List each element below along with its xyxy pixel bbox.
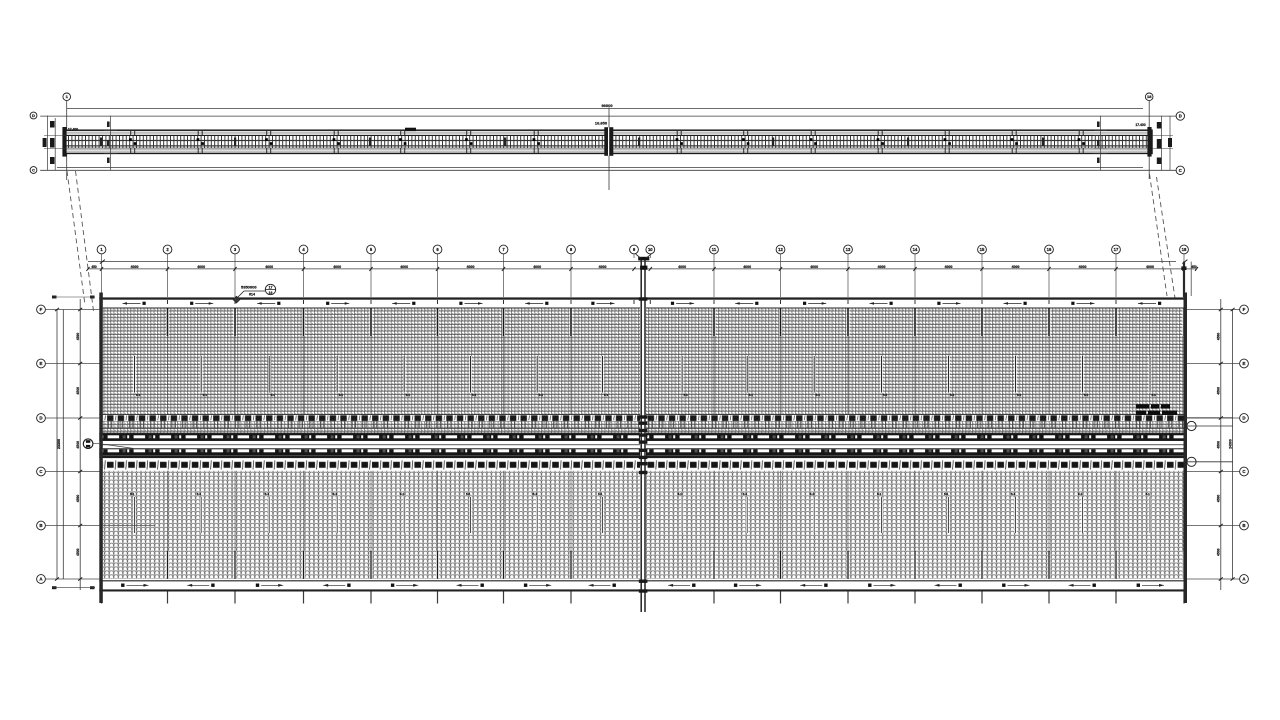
svg-text:5-1: 5-1 xyxy=(684,393,689,397)
svg-text:15: 15 xyxy=(980,247,985,252)
svg-text:4000: 4000 xyxy=(1079,265,1087,269)
svg-text:5-1: 5-1 xyxy=(810,492,815,496)
svg-text:D: D xyxy=(32,114,35,118)
svg-text:24300: 24300 xyxy=(1228,439,1232,449)
svg-text:5350000: 5350000 xyxy=(241,285,257,290)
svg-text:16: 16 xyxy=(1047,247,1052,252)
svg-text:4500: 4500 xyxy=(1217,495,1221,503)
svg-text:14: 14 xyxy=(913,247,918,252)
svg-text:B: B xyxy=(39,523,42,528)
svg-text:4000: 4000 xyxy=(945,265,953,269)
svg-text:5-1: 5-1 xyxy=(271,393,276,397)
svg-text:96000: 96000 xyxy=(601,103,613,108)
svg-text:17: 17 xyxy=(1114,247,1119,252)
svg-text:4000: 4000 xyxy=(810,265,818,269)
svg-text:5-1: 5-1 xyxy=(1146,492,1151,496)
svg-text:4000: 4000 xyxy=(1012,265,1020,269)
svg-text:5-1: 5-1 xyxy=(533,492,538,496)
svg-text:12: 12 xyxy=(778,247,783,252)
svg-text:5-1: 5-1 xyxy=(1078,492,1083,496)
svg-text:17: 17 xyxy=(269,286,273,290)
svg-text:4000: 4000 xyxy=(878,265,886,269)
svg-text:13: 13 xyxy=(846,247,851,252)
svg-text:5-1: 5-1 xyxy=(743,492,748,496)
svg-text:5-1: 5-1 xyxy=(950,393,955,397)
svg-text:5-1: 5-1 xyxy=(1084,393,1089,397)
svg-text:5-1: 5-1 xyxy=(1017,393,1022,397)
svg-text:10: 10 xyxy=(648,247,653,252)
svg-text:E: E xyxy=(40,361,43,366)
svg-text:5-1: 5-1 xyxy=(1011,492,1016,496)
svg-text:#14: #14 xyxy=(249,293,255,297)
svg-text:4500: 4500 xyxy=(76,548,80,556)
svg-text:5-1: 5-1 xyxy=(816,393,821,397)
svg-text:5-1: 5-1 xyxy=(130,492,135,496)
svg-text:11: 11 xyxy=(712,247,717,252)
svg-text:D: D xyxy=(1179,114,1182,119)
svg-text:4000: 4000 xyxy=(467,265,475,269)
svg-text:5-1: 5-1 xyxy=(197,492,202,496)
svg-text:5-1: 5-1 xyxy=(678,492,683,496)
svg-text:5-1: 5-1 xyxy=(604,393,609,397)
svg-text:4500: 4500 xyxy=(76,495,80,503)
svg-text:B: B xyxy=(1242,523,1245,528)
svg-text:450: 450 xyxy=(1191,265,1197,269)
svg-text:C: C xyxy=(32,168,35,172)
svg-text:C: C xyxy=(1179,168,1182,173)
svg-text:17.400: 17.400 xyxy=(1135,123,1145,127)
svg-text:D: D xyxy=(39,416,42,421)
svg-text:4000: 4000 xyxy=(599,265,607,269)
svg-text:4000: 4000 xyxy=(333,265,341,269)
svg-text:5-1: 5-1 xyxy=(944,492,949,496)
svg-text:4000: 4000 xyxy=(743,265,751,269)
svg-text:5-1: 5-1 xyxy=(265,492,270,496)
svg-text:4000: 4000 xyxy=(197,265,205,269)
svg-text:5-1: 5-1 xyxy=(598,492,603,496)
svg-text:F: F xyxy=(40,307,43,312)
svg-text:4000: 4000 xyxy=(265,265,273,269)
svg-text:18: 18 xyxy=(1147,94,1152,99)
svg-text:17.400: 17.400 xyxy=(68,128,78,132)
svg-text:4500: 4500 xyxy=(1217,387,1221,395)
svg-text:18: 18 xyxy=(1182,247,1187,252)
svg-text:4500: 4500 xyxy=(1217,548,1221,556)
svg-text:5-1: 5-1 xyxy=(472,393,477,397)
svg-text:5-1: 5-1 xyxy=(466,492,471,496)
svg-text:F: F xyxy=(1243,307,1246,312)
svg-text:5-1: 5-1 xyxy=(400,492,405,496)
svg-text:16.650: 16.650 xyxy=(595,121,608,126)
svg-text:5-1: 5-1 xyxy=(203,393,208,397)
svg-text:E: E xyxy=(1243,361,1246,366)
svg-text:5-1: 5-1 xyxy=(333,492,338,496)
svg-text:4000: 4000 xyxy=(1146,265,1154,269)
svg-text:4500: 4500 xyxy=(76,387,80,395)
svg-text:4000: 4000 xyxy=(678,265,686,269)
svg-text:450: 450 xyxy=(91,265,97,269)
svg-text:5-1: 5-1 xyxy=(749,393,754,397)
svg-text:D: D xyxy=(1242,416,1245,421)
svg-text:4000: 4000 xyxy=(533,265,541,269)
svg-text:4500: 4500 xyxy=(1217,333,1221,341)
svg-text:23300: 23300 xyxy=(57,439,61,449)
svg-text:5-1: 5-1 xyxy=(136,393,141,397)
svg-text:4500: 4500 xyxy=(76,441,80,449)
svg-text:5-1: 5-1 xyxy=(883,393,888,397)
svg-text:5-1: 5-1 xyxy=(339,393,344,397)
svg-text:5-1: 5-1 xyxy=(877,492,882,496)
svg-text:5-1: 5-1 xyxy=(1152,393,1157,397)
svg-text:19: 19 xyxy=(269,291,273,295)
svg-text:4500: 4500 xyxy=(76,333,80,341)
svg-text:5-1: 5-1 xyxy=(539,393,544,397)
svg-text:4500: 4500 xyxy=(1217,441,1221,449)
svg-text:4000: 4000 xyxy=(400,265,408,269)
svg-text:5-1: 5-1 xyxy=(406,393,411,397)
svg-text:4000: 4000 xyxy=(131,265,139,269)
